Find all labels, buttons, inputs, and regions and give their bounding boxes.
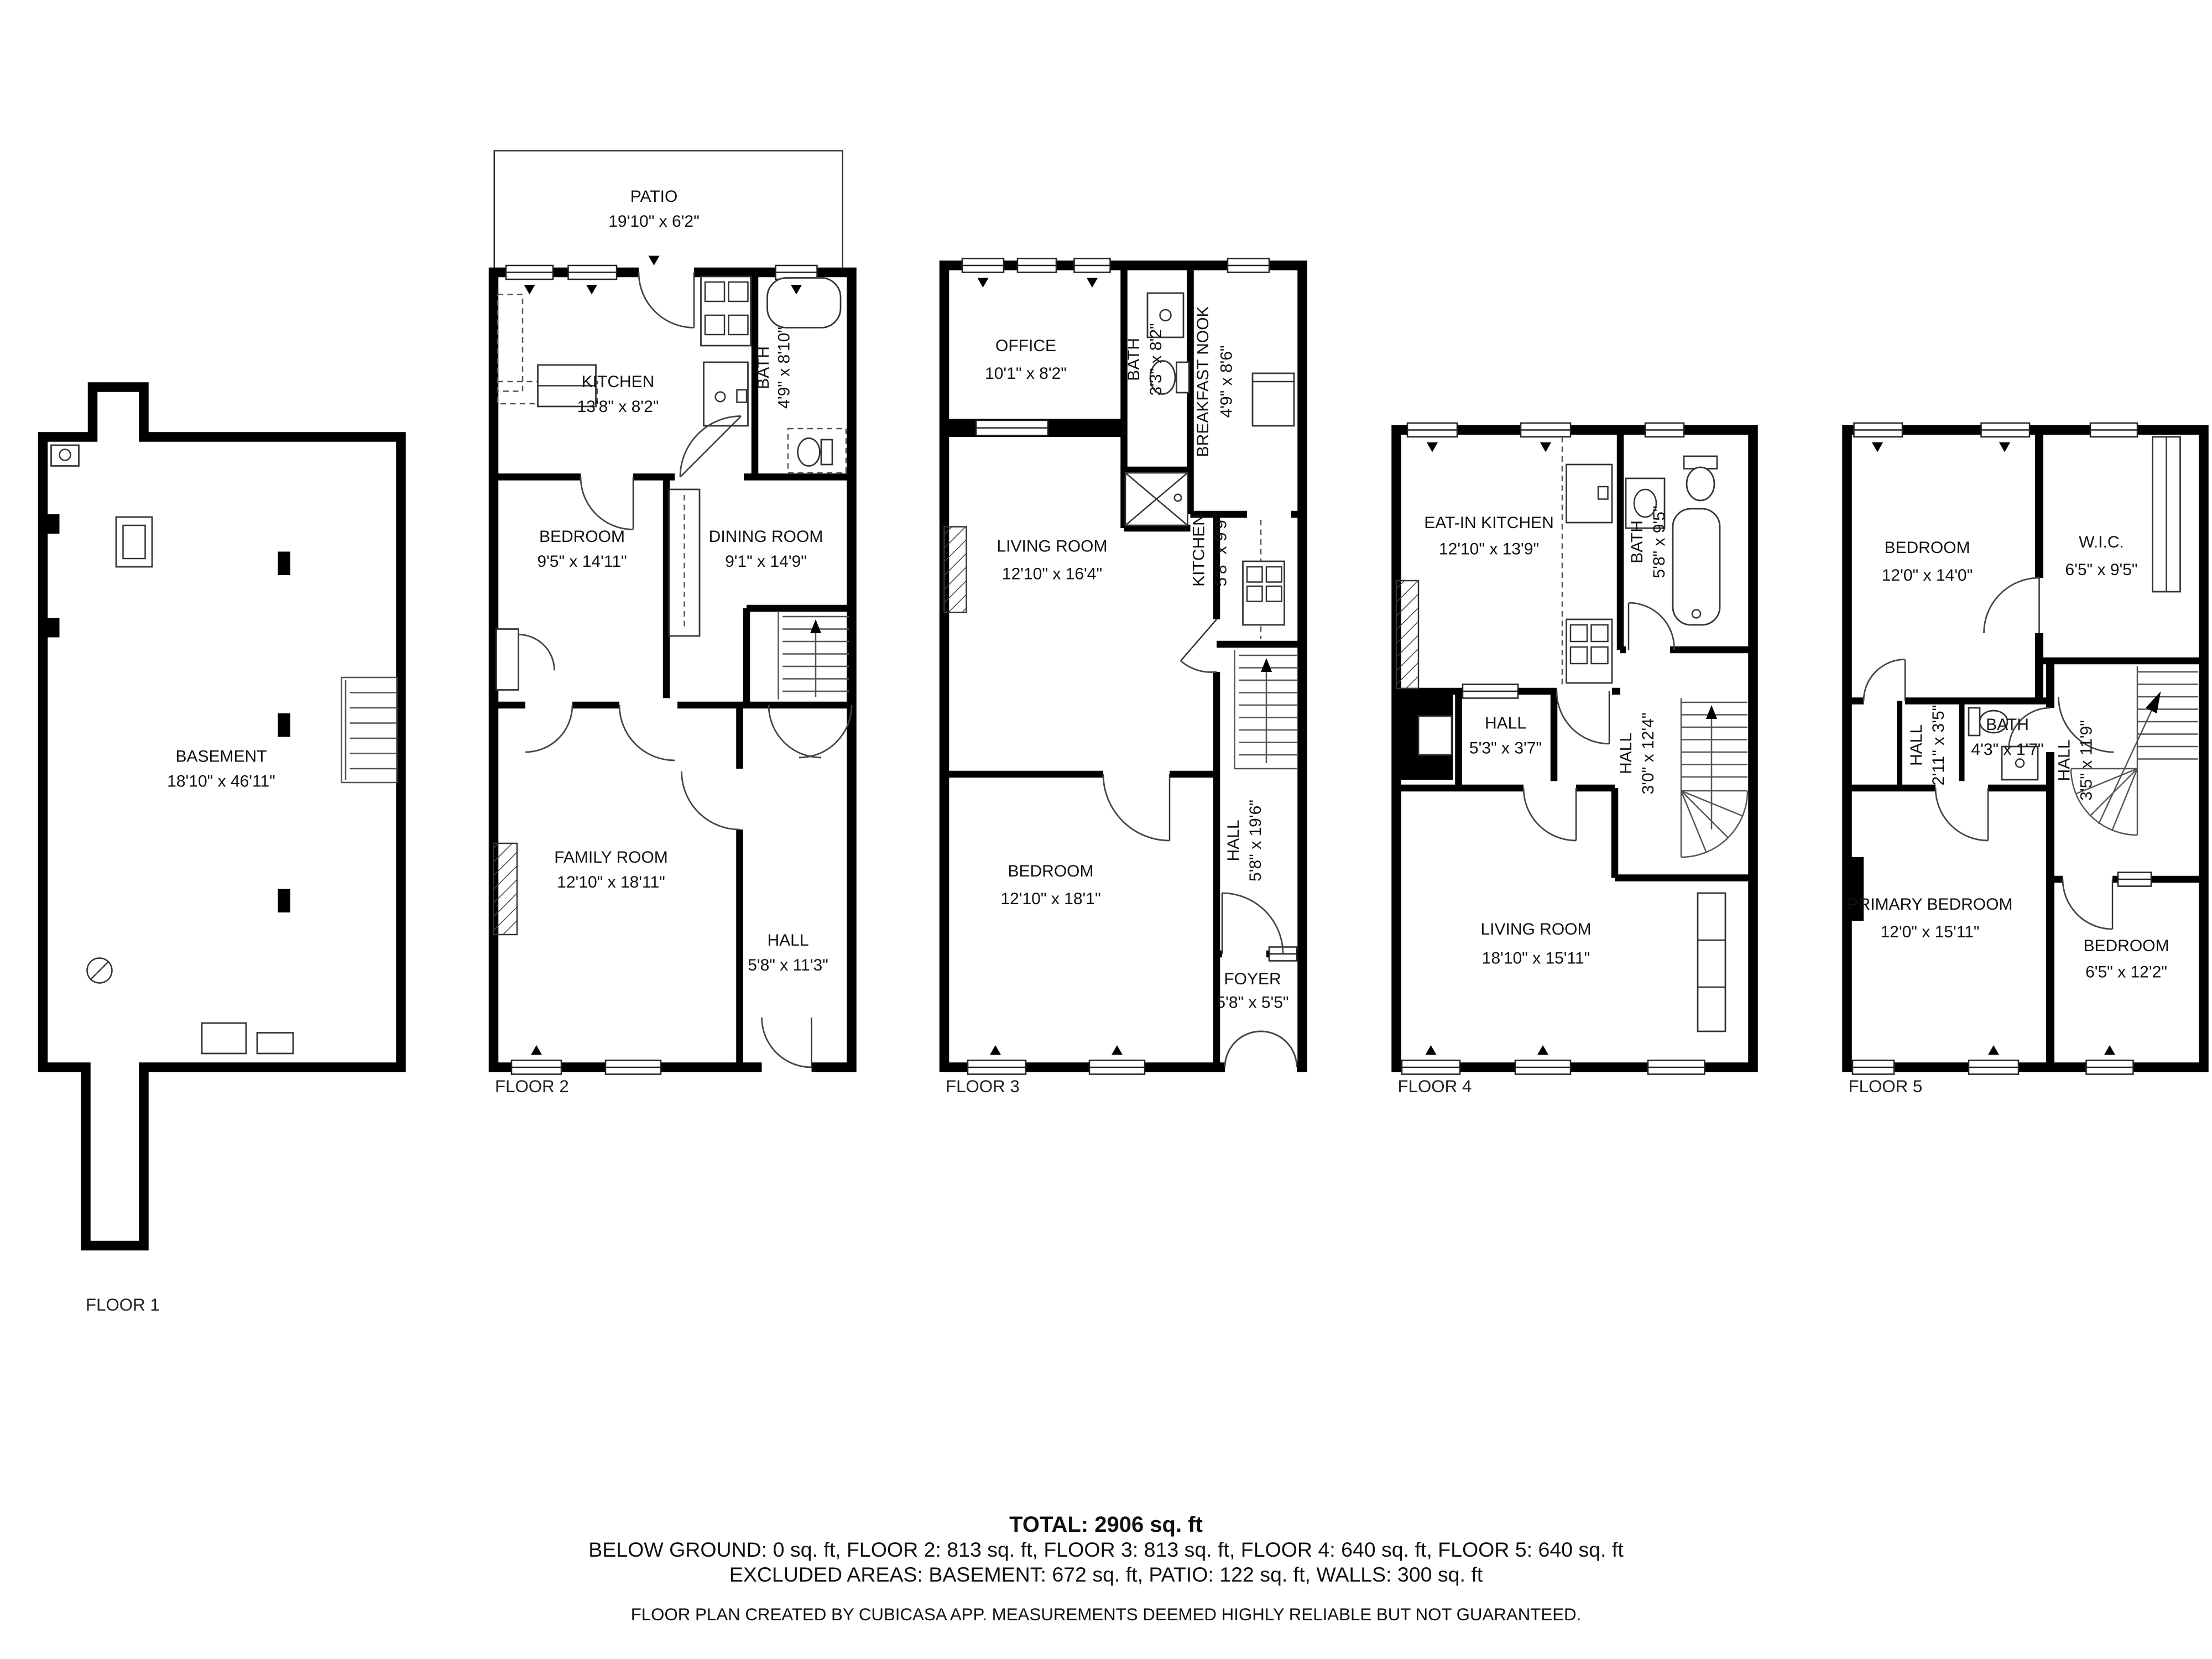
room-name-hall-small-f5: HALL: [1907, 724, 1926, 766]
window: [1407, 423, 1457, 437]
per-floor-area-text: BELOW GROUND: 0 sq. ft, FLOOR 2: 813 sq.…: [588, 1538, 1624, 1561]
window: [1853, 1061, 1894, 1074]
wall-notch: [43, 514, 60, 534]
window: [568, 265, 617, 279]
window: [968, 1061, 1026, 1074]
stove-icon: [1243, 561, 1285, 625]
door-opening: [1626, 643, 1670, 657]
room-dims-bedroom-f5: 12'0" x 14'0": [1882, 566, 1973, 585]
door-opening: [525, 698, 572, 712]
window: [512, 1061, 561, 1074]
floor-3-plan: OFFICE 10'1" x 8'2" BATH 3'3" x 8'2" BRE…: [945, 259, 1303, 1097]
room-dims-basement: 18'10" x 46'11": [167, 773, 275, 791]
excluded-area-text: EXCLUDED AREAS: BASEMENT: 672 sq. ft, PA…: [729, 1563, 1483, 1586]
washer-icon: [51, 445, 79, 466]
room-dims-hall-small-f4: 5'3" x 3'7": [1469, 739, 1542, 758]
cabinet: [1418, 716, 1452, 755]
floor-2-label: FLOOR 2: [495, 1077, 569, 1096]
room-name-bedroom2-f5: BEDROOM: [2083, 937, 2169, 955]
room-dims-bath-f2: 4'9" x 8'10": [775, 327, 794, 409]
stove-icon: [701, 276, 751, 346]
room-name-hall-f2: HALL: [767, 931, 808, 950]
closet-shelf: [2153, 437, 2180, 592]
room-name-bath-f4: BATH: [1628, 520, 1646, 564]
pillar: [278, 713, 291, 737]
pillar: [278, 552, 291, 576]
room-dims-nook: 4'9" x 8'6": [1218, 345, 1236, 418]
transom-window: [2118, 873, 2151, 886]
room-dims-bedroom-f3: 12'10" x 18'1": [1000, 890, 1100, 908]
floor-2-plan: PATIO 19'10" x 6'2": [494, 151, 852, 1097]
window: [2086, 1061, 2133, 1074]
room-name-eatin-kitchen: EAT-IN KITCHEN: [1424, 514, 1553, 532]
room-name-bath-f3: BATH: [1125, 338, 1143, 381]
bathtub-icon: [768, 278, 841, 328]
room-dims-bath-f5: 4'3" x 1'7": [1971, 740, 2043, 759]
nook-counter: [1253, 373, 1294, 426]
room-dims-living-f4: 18'10" x 15'11": [1482, 950, 1590, 968]
storage-box: [257, 1033, 293, 1054]
room-dims-wic: 6'5" x 9'5": [2065, 561, 2137, 579]
room-dims-dining-f2: 9'1" x 14'9": [725, 552, 807, 571]
room-name-hall-long-f5: HALL: [2056, 739, 2074, 781]
fireplace-icon: [945, 527, 967, 613]
window: [962, 259, 1004, 273]
door-opening: [1103, 768, 1170, 781]
room-dims-living-f3: 12'10" x 16'4": [1002, 565, 1102, 583]
floor-5-label: FLOOR 5: [1849, 1077, 1923, 1096]
floor-4-label: FLOOR 4: [1398, 1077, 1472, 1096]
floor-4-plan: EAT-IN KITCHEN 12'10" x 13'9" BATH 5'8" …: [1396, 423, 1753, 1096]
basement-outline: [43, 387, 401, 1246]
room-dims-hall-long-f5: 3'5" x 11'9": [2078, 720, 2096, 801]
room-dims-patio: 19'10" x 6'2": [608, 212, 700, 231]
floor-plan-canvas: BASEMENT 18'10" x 46'11" FLOOR 1 PATIO 1…: [0, 0, 2212, 1659]
shower-icon: [1125, 473, 1188, 525]
window: [1854, 423, 1903, 437]
door-opening: [1557, 685, 1612, 698]
kitchen-sink-icon: [704, 362, 748, 426]
window: [1521, 423, 1571, 437]
door-opening: [619, 698, 677, 712]
bathtub-icon: [1673, 509, 1720, 625]
window: [1402, 1061, 1460, 1074]
utility-box: [116, 517, 152, 567]
window: [1515, 1061, 1571, 1074]
floor-1-label: FLOOR 1: [86, 1295, 160, 1314]
room-dims-office: 10'1" x 8'2": [985, 364, 1067, 383]
window: [606, 1061, 661, 1074]
door-opening: [2063, 873, 2112, 886]
floor-plan-sheet: BASEMENT 18'10" x 46'11" FLOOR 1 PATIO 1…: [0, 0, 2212, 1659]
room-dims-kitchen-f3: 5'8" x 9'9": [1212, 514, 1230, 586]
room-name-hall-f3: HALL: [1224, 820, 1243, 861]
room-name-foyer: FOYER: [1224, 970, 1281, 988]
pillar: [278, 889, 291, 913]
floor-1-plan: BASEMENT 18'10" x 46'11" FLOOR 1: [43, 387, 401, 1314]
room-name-family-f2: FAMILY ROOM: [554, 848, 668, 867]
room-name-nook: BREAKFAST NOOK: [1194, 306, 1212, 457]
cased-opening: [1463, 685, 1518, 698]
room-name-hall-small-f4: HALL: [1485, 714, 1526, 733]
patio-outline: [494, 151, 843, 273]
room-dims-primary-bedroom: 12'0" x 15'11": [1881, 923, 1980, 941]
room-dims-foyer: 5'8" x 5'5": [1216, 994, 1288, 1012]
room-name-bath-f2: BATH: [754, 346, 773, 389]
disclaimer-text: FLOOR PLAN CREATED BY CUBICASA APP. MEAS…: [631, 1605, 1582, 1624]
window: [1074, 259, 1110, 273]
room-dims-bath-f3: 3'3" x 8'2": [1147, 323, 1165, 395]
cabinet: [1567, 465, 1613, 523]
total-area-text: TOTAL: 2906 sq. ft: [1009, 1512, 1203, 1537]
room-name-kitchen-f3: KITCHEN: [1190, 514, 1208, 587]
room-dims-hall-f2: 5'8" x 11'3": [748, 956, 828, 974]
summary-block: TOTAL: 2906 sq. ft BELOW GROUND: 0 sq. f…: [588, 1512, 1624, 1624]
room-name-patio: PATIO: [630, 187, 678, 206]
room-name-bedroom-f2: BEDROOM: [539, 528, 625, 546]
room-dims-kitchen-f2: 13'8" x 8'2": [577, 398, 659, 416]
toilet-icon: [1684, 456, 1717, 500]
window: [1648, 1061, 1705, 1074]
room-name-bedroom-f3: BEDROOM: [1008, 862, 1093, 880]
room-name-wic: W.I.C.: [2079, 533, 2124, 551]
floor-5-plan: BEDROOM 12'0" x 14'0" W.I.C. 6'5" x 9'5"…: [1847, 423, 2204, 1096]
window: [2090, 423, 2137, 437]
window: [1228, 259, 1269, 273]
opening: [1247, 508, 1291, 521]
patio-door-opening: [639, 264, 694, 281]
window: [1089, 1061, 1145, 1074]
window: [1018, 259, 1056, 273]
wall-notch: [43, 618, 60, 638]
room-dims-bath-f4: 5'8" x 9'5": [1650, 505, 1668, 578]
fireplace-icon: [494, 843, 518, 935]
door-opening: [733, 769, 747, 830]
room-name-living-f4: LIVING ROOM: [1480, 920, 1591, 938]
room-dims-bedroom-f2: 9'5" x 14'11": [537, 552, 627, 571]
window: [1969, 1061, 2018, 1074]
wardrobe: [669, 489, 700, 636]
fireplace-icon: [1396, 581, 1418, 688]
room-name-bedroom-f5: BEDROOM: [1884, 539, 1970, 557]
room-name-hall-long-f4: HALL: [1617, 733, 1635, 774]
storage-box: [202, 1023, 246, 1053]
room-dims-eatin-kitchen: 12'10" x 13'9": [1439, 540, 1539, 559]
room-name-basement: BASEMENT: [175, 748, 267, 766]
room-dims-hall-f3: 5'8" x 19'6": [1246, 800, 1265, 881]
room-name-office: OFFICE: [995, 337, 1056, 355]
room-name-bath-f5: BATH: [1986, 716, 2029, 734]
window: [1645, 423, 1684, 437]
room-name-kitchen-f2: KITCHEN: [582, 373, 655, 391]
room-dims-hall-small-f5: 2'11" x 3'5": [1929, 705, 1948, 786]
room-name-living-f3: LIVING ROOM: [997, 538, 1107, 556]
door-opening: [1222, 947, 1266, 961]
cased-opening: [976, 420, 1048, 436]
floor-3-label: FLOOR 3: [946, 1077, 1020, 1096]
room-dims-bedroom2-f5: 6'5" x 12'2": [2085, 963, 2167, 982]
door-opening: [581, 470, 633, 484]
room-name-primary-bedroom: PRIMARY BEDROOM: [1848, 895, 2013, 914]
room-dims-family-f2: 12'10" x 18'11": [557, 873, 665, 891]
sofa: [1698, 893, 1725, 1031]
door-opening: [1225, 1059, 1297, 1076]
window: [506, 265, 553, 279]
window: [1981, 423, 2030, 437]
door-opening: [1524, 781, 1576, 795]
stove-icon: [1567, 619, 1613, 683]
room-dims-hall-long-f4: 3'0" x 12'4": [1639, 713, 1657, 795]
room-name-dining-f2: DINING ROOM: [709, 528, 823, 546]
